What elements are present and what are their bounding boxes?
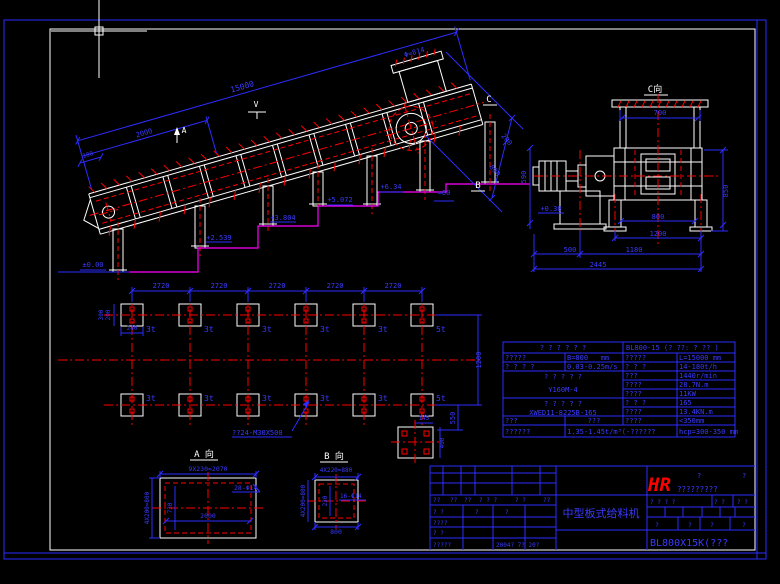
crosshair-cursor-icon: [51, 0, 147, 78]
c-dim-590: 590: [520, 171, 528, 184]
date-cell: 2004? 7? 20?: [496, 542, 540, 549]
tail-nose: [79, 200, 99, 232]
c-bottom-dim-lines: [534, 221, 701, 269]
param-value: 0.03-0.25m/s: [567, 363, 618, 371]
sign-cell: ?: [505, 509, 509, 516]
rev-header: ??: [450, 497, 458, 504]
load-label: 5t: [436, 394, 446, 403]
param-label: ??????: [505, 428, 530, 436]
drawing-number: BL800X15K(???: [650, 538, 728, 549]
dim-550: 550: [449, 412, 457, 425]
row-spacing-dim: 1200: [475, 352, 483, 369]
approval-header: ? ?: [714, 499, 725, 506]
param-value: 28.7N.m: [679, 381, 709, 389]
cad-viewport[interactable]: Φ≈814 15000 2000 100 ±0.00: [0, 0, 780, 584]
parameter-table: ? ? ? ? ? ? BL800-15 (? ??: ? ?? ) ?????…: [503, 342, 738, 437]
pad-dim-300: 300: [98, 309, 105, 320]
param-label: ????: [625, 381, 642, 389]
param-label: ?????: [625, 354, 646, 362]
bay-dim: 2720: [327, 282, 344, 290]
approval-cell: ?: [655, 521, 659, 529]
param-header-left: ? ? ? ? ? ?: [540, 344, 586, 352]
load-label: 3t: [262, 325, 272, 334]
detail-a-dim-2000: 2000: [200, 512, 216, 520]
body-ribs: [126, 102, 432, 219]
c-bottom-ext-lines: [534, 231, 707, 272]
motor-label: ? ? ? ? ?: [544, 373, 582, 381]
sign-cell: ? ?: [433, 509, 444, 516]
load-label: 3t: [378, 325, 388, 334]
title-block: ?? ?? ?? ? ? ? ? ? ?? ? ? ? ? ???? ? ? ?…: [430, 466, 755, 550]
param-label: ? ? ?: [625, 399, 646, 407]
approval-cell: ?: [710, 521, 714, 529]
level-634: +6.34: [380, 183, 401, 191]
detail-view-a: A 向 9X230=2070 4X200=800 730 2000 28-Φ14: [144, 448, 264, 544]
detail-a-title: A 向: [194, 448, 214, 460]
c-dim-850: 850: [722, 185, 730, 198]
reducer-model: XWED11-8225B-165: [529, 409, 596, 417]
param-label: ???: [625, 372, 638, 380]
detail-b-bottom-dim: 800: [330, 528, 342, 536]
rev-header: ??: [464, 497, 472, 504]
approval-cell: ?: [688, 521, 692, 529]
hopper-diameter-dim: Φ≈814: [403, 46, 425, 60]
detail-a-dim-730: 730: [167, 502, 174, 513]
approval-header: ? ?: [737, 499, 748, 506]
revision-grid: [430, 466, 556, 550]
anchor-bolt-note: ??24-M30X500: [232, 429, 283, 437]
cad-drawing: Φ≈814 15000 2000 100 ±0.00: [0, 0, 780, 584]
param-value: 13.4KN.m: [679, 408, 713, 416]
detail-a-left-dim: 4X200=800: [144, 491, 151, 524]
param-value: 1.35-1.45t/m³(-??????: [567, 428, 656, 436]
plan-column-axes: [132, 292, 422, 428]
bay-dim: 2720: [153, 282, 170, 290]
param-value: hcp=300-350 mm: [679, 428, 738, 436]
param-label: ????: [625, 408, 642, 416]
pad-dim-240: 240: [127, 325, 138, 332]
rev-header: ??: [433, 497, 441, 504]
param-value: 1440r/min: [679, 372, 717, 380]
param-label: ????: [625, 390, 642, 398]
param-value: 165: [679, 399, 692, 407]
detail-b-title: B 向: [324, 450, 344, 462]
flange-hatch-ticks: [618, 101, 701, 107]
overall-length-dim: 15000: [229, 79, 255, 94]
bay-dim: 2720: [385, 282, 402, 290]
load-label: 3t: [146, 394, 156, 403]
approval-header: ? ? ? ?: [650, 499, 676, 506]
load-label: 3t: [378, 394, 388, 403]
level-zero: ±0.00: [82, 261, 103, 269]
detail-a-top-dim: 9X230=2070: [188, 465, 227, 473]
param-value: B=800 mm: [567, 354, 609, 362]
param-value: L=15000 mm: [679, 354, 721, 362]
motor-model: Y160M-4: [548, 386, 578, 394]
company-name: ?????????: [677, 485, 718, 494]
logo-char: ?: [697, 472, 701, 480]
c-dim-2445: 2445: [590, 261, 607, 269]
load-label: 3t: [204, 394, 214, 403]
support-legs: [109, 114, 499, 280]
detail-b-holes-label: 16-Φ14: [340, 493, 362, 500]
param-value: 11KW: [679, 390, 697, 398]
c-dim-1200: 1200: [650, 230, 667, 238]
param-label: ? ? ?: [625, 363, 646, 371]
load-label: 5t: [436, 325, 446, 334]
c-dim-500: 500: [564, 246, 577, 254]
param-label: ?????: [505, 354, 526, 362]
param-label: ? ? ? ?: [505, 363, 535, 371]
detail-view-b: B 向 4X220=880 4X200=800 230 16-Φ14 800: [300, 450, 366, 536]
section-dim-200: 200: [499, 132, 513, 147]
c-dim-700: 700: [654, 109, 667, 117]
param-value: <350mm: [679, 417, 704, 425]
product-name: 中型板式给料机: [563, 506, 640, 520]
c-view-title: C向: [648, 83, 662, 95]
view-label-a: A: [182, 126, 187, 135]
pad-detail-dim-400: 400: [439, 437, 446, 448]
sign-cell: ?: [475, 509, 479, 516]
rev-header: ??: [543, 497, 551, 504]
c-section-view: C向 700 590 +0.38 850: [520, 83, 730, 272]
feeder-body-rotated: Φ≈814 15000 2000 100: [59, 20, 492, 247]
load-label: 3t: [204, 325, 214, 334]
load-label: 3t: [320, 325, 330, 334]
sign-cell: ????: [433, 520, 448, 527]
sign-cell: ? ?: [433, 530, 444, 537]
rev-header: ? ?: [515, 497, 526, 504]
foundation-plan: 2720 2720 2720 2720 2720 3t 3t 3t 3t 3t …: [58, 282, 483, 465]
detail-b-dim-230: 230: [322, 495, 329, 506]
section-label-b: B: [475, 181, 480, 191]
pad-detail-dim-145: 145: [419, 415, 430, 422]
tail-offset-dim: 100: [82, 150, 95, 160]
level-2539: +2.539: [206, 234, 231, 242]
approx-60-dim: ≈60: [438, 189, 451, 197]
weld-label-v: V: [254, 100, 259, 109]
approval-cell: ?: [742, 521, 746, 529]
pad-dim-200: 200: [105, 309, 112, 320]
bay-length-dim: 2000: [135, 127, 153, 139]
c-level-038: +0.38: [540, 205, 561, 213]
level-3804: +3.804: [270, 214, 295, 222]
c-dim-1180: 1180: [626, 246, 643, 254]
detail-b-left-dim: 4X200=800: [300, 484, 307, 517]
logo-char: ?: [742, 472, 746, 480]
bay-dim: 2720: [211, 282, 228, 290]
param-value: ???: [588, 417, 601, 425]
load-label: 3t: [146, 325, 156, 334]
company-logo: HR: [647, 474, 671, 496]
section-label-c: C: [486, 95, 491, 105]
bay-dim: 2720: [269, 282, 286, 290]
tail-sprocket: [101, 205, 116, 220]
level-5072: +5.072: [327, 196, 352, 204]
param-label: ????: [625, 417, 642, 425]
param-value: 14-180t/h: [679, 363, 717, 371]
load-label: 3t: [320, 394, 330, 403]
reducer-label: ? ? ? ? ?: [544, 400, 582, 408]
load-label: 3t: [262, 394, 272, 403]
section-dim-800: 800: [487, 163, 501, 178]
c-dim-800: 800: [652, 213, 665, 221]
rev-header: ? ? ?: [479, 497, 497, 504]
main-elevation-view: Φ≈814 15000 2000 100 ±0.00: [58, 20, 530, 280]
tail-centerlines: [96, 200, 121, 225]
feed-hopper: [399, 61, 446, 103]
param-label: ???: [505, 417, 518, 425]
param-header-right: BL800-15 (? ??: ? ?? ): [626, 344, 719, 352]
detail-b-top-dim: 4X220=880: [320, 467, 353, 474]
sign-cell: ?????: [433, 542, 451, 549]
detail-b-centerlines: [307, 474, 366, 529]
